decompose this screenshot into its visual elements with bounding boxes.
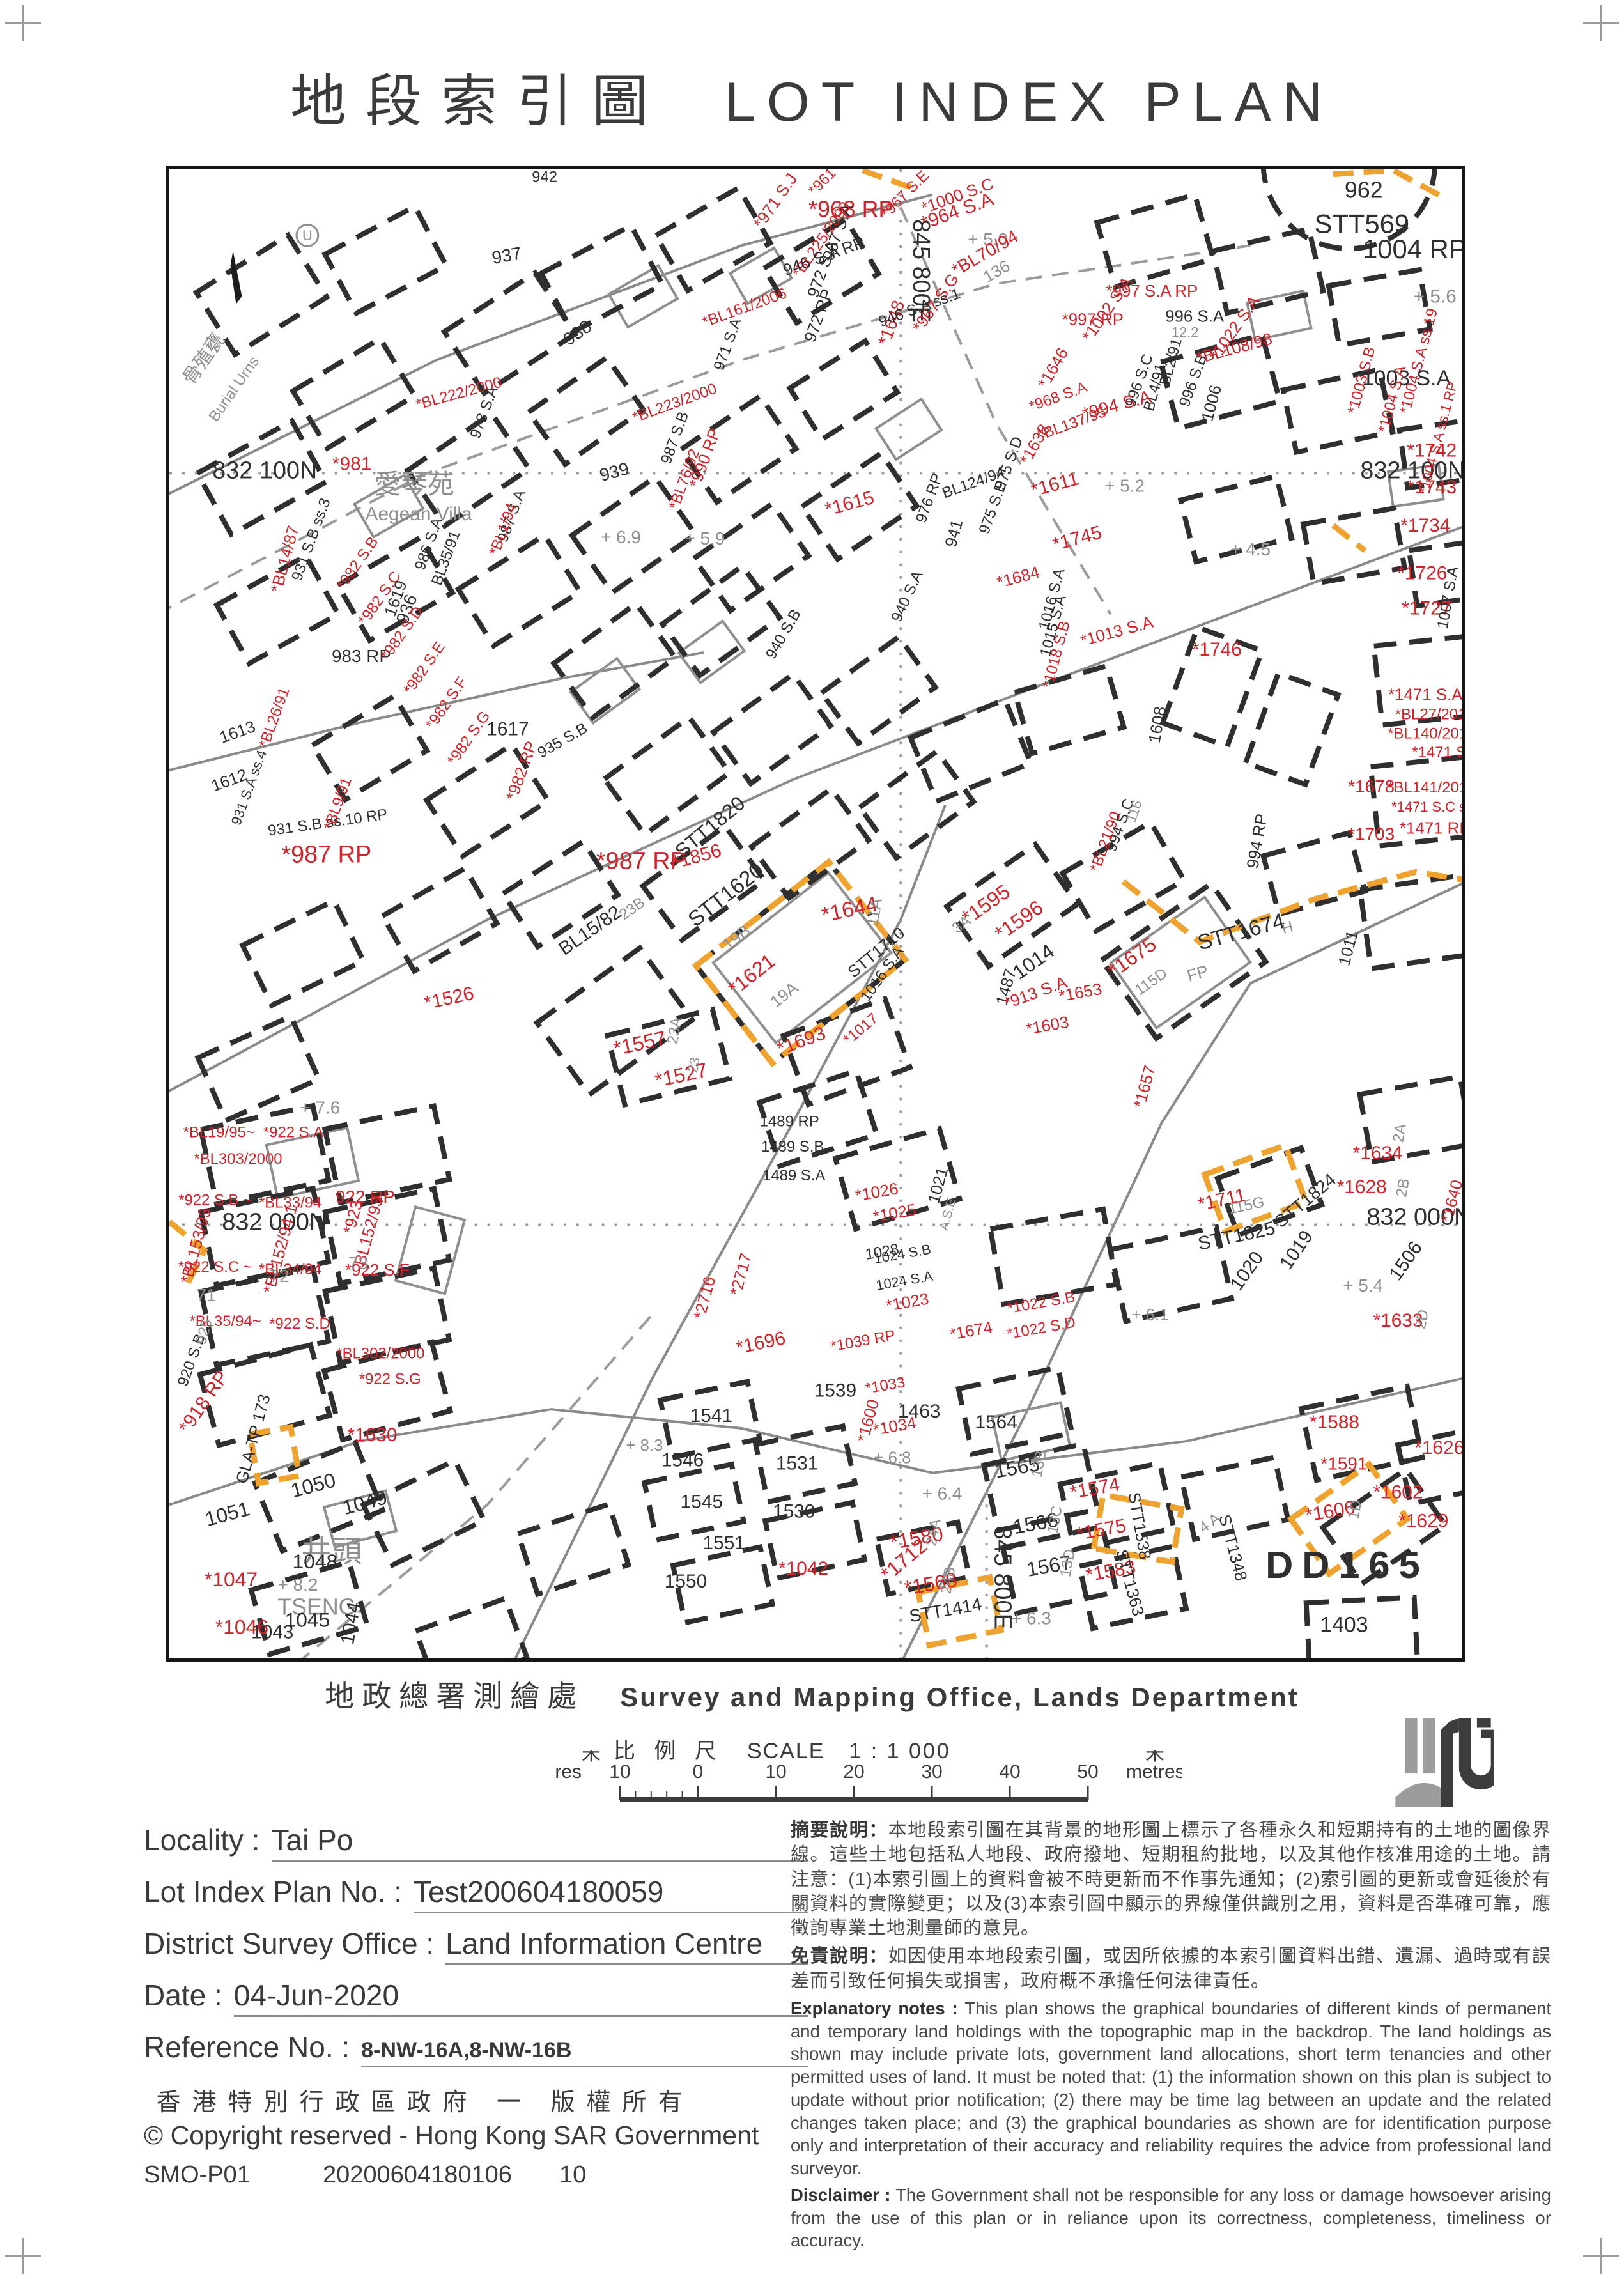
field-date-label: Date : — [144, 1978, 234, 2012]
svg-text:*2717: *2717 — [727, 1251, 756, 1298]
explanatory-notes-english: Explanatory notes : This plan shows the … — [791, 1997, 1551, 2180]
svg-text:1546: 1546 — [661, 1450, 704, 1471]
svg-text:937: 937 — [490, 243, 523, 268]
svg-text:1011: 1011 — [1335, 929, 1361, 968]
svg-text:FP: FP — [1185, 962, 1210, 985]
svg-text:*982 S.E: *982 S.E — [400, 638, 449, 698]
svg-text:832 000N: 832 000N — [222, 1209, 327, 1236]
svg-text:1051: 1051 — [203, 1497, 252, 1531]
svg-text:*982 RP: *982 RP — [503, 739, 541, 803]
svg-text:*1026: *1026 — [854, 1180, 899, 1205]
svg-text:*1746: *1746 — [1192, 639, 1242, 660]
svg-text:1530: 1530 — [773, 1501, 815, 1522]
svg-text:愛琴苑: 愛琴苑 — [374, 469, 454, 499]
page-title-chinese: 地段索引圖 — [290, 56, 667, 137]
svg-text:12.2: 12.2 — [1172, 324, 1199, 340]
copyright-chinese: 香港特別行政區政府 一 版權所有 — [144, 2082, 706, 2117]
svg-text:*1047: *1047 — [205, 1568, 258, 1591]
svg-text:*BL19/95~: *BL19/95~ — [183, 1124, 255, 1141]
notes-column: 摘要說明：本地段索引圖在其背景的地形圖上標示了各種永久和短期持有的土地的圖像界線… — [791, 1818, 1551, 2256]
svg-text:832 100N: 832 100N — [212, 457, 317, 484]
svg-text:*1471 S.B: *1471 S.B — [1412, 744, 1462, 761]
svg-text:*1046: *1046 — [215, 1615, 268, 1638]
page-title-english: LOT INDEX PLAN — [725, 71, 1334, 134]
field-plan-number: Lot Index Plan No. : Test200604180059 — [144, 1874, 808, 1913]
scale-bar: 米metres1001020304050metres米 — [556, 1750, 1182, 1809]
svg-text:*1734: *1734 — [1400, 515, 1450, 536]
svg-text:1506: 1506 — [1385, 1237, 1427, 1284]
disclaimer-note-chinese: 免責說明：如因使用本地段索引圖，或因所依據的本索引圖資料出錯、遺漏、過時或有誤差… — [791, 1944, 1551, 1993]
svg-text:10: 10 — [609, 1761, 630, 1782]
explanatory-notes-english-label: Explanatory notes : — [791, 1998, 958, 2018]
svg-text:DD165: DD165 — [1265, 1543, 1428, 1586]
page-title: 地段索引圖 LOT INDEX PLAN — [0, 56, 1624, 137]
svg-text:+ 5.2: + 5.2 — [1104, 475, 1145, 495]
svg-text:1541: 1541 — [690, 1405, 732, 1426]
svg-text:50: 50 — [1077, 1761, 1098, 1782]
svg-text:115D: 115D — [1132, 964, 1171, 999]
svg-text:1489 S.A: 1489 S.A — [762, 1167, 825, 1184]
svg-text:40: 40 — [999, 1761, 1020, 1782]
svg-text:*987 RP: *987 RP — [596, 847, 686, 874]
field-reference-number: Reference No. : 8-NW-16A,8-NW-16B — [144, 2030, 808, 2067]
field-locality-label: Locality : — [144, 1823, 272, 1857]
crop-mark-top-left — [5, 5, 41, 41]
svg-text:*1615: *1615 — [823, 487, 876, 520]
svg-text:*987 RP: *987 RP — [281, 841, 371, 868]
svg-text:1551: 1551 — [703, 1533, 745, 1554]
svg-text:*1621: *1621 — [723, 949, 780, 1000]
svg-text:*1657: *1657 — [1131, 1063, 1159, 1110]
svg-text:+ 6.9: + 6.9 — [601, 527, 641, 547]
svg-text:*1743: *1743 — [1407, 477, 1457, 498]
svg-text:*1042: *1042 — [778, 1558, 828, 1579]
svg-text:+ 5.9: + 5.9 — [684, 529, 725, 548]
svg-text:*997 RP: *997 RP — [1062, 311, 1124, 329]
svg-text:996 S.A: 996 S.A — [1165, 308, 1225, 326]
field-reference-number-label: Reference No. : — [144, 2030, 361, 2064]
svg-text:*BL27/2016: *BL27/2016 — [1395, 706, 1462, 723]
svg-text:1463: 1463 — [898, 1401, 940, 1422]
field-locality: Locality : Tai Po — [144, 1823, 808, 1862]
svg-text:*1471 S.C ss.1: *1471 S.C ss.1 — [1391, 799, 1462, 815]
svg-text:+ 5.4: + 5.4 — [1343, 1276, 1383, 1295]
svg-text:942: 942 — [532, 169, 557, 186]
svg-text:*BL140/2012: *BL140/2012 — [1388, 725, 1462, 742]
svg-text:1489 S.B: 1489 S.B — [761, 1138, 824, 1155]
svg-text:23: 23 — [684, 1056, 703, 1074]
crop-mark-bottom-left — [5, 2238, 41, 2274]
svg-text:+ 8.2: + 8.2 — [278, 1575, 318, 1595]
svg-text:941: 941 — [942, 518, 966, 549]
summary-note-chinese-label: 摘要說明： — [791, 1820, 888, 1841]
svg-text:*997 S.A RP: *997 S.A RP — [1106, 282, 1198, 300]
svg-text:*1471 RP: *1471 RP — [1400, 820, 1462, 838]
svg-text:0: 0 — [693, 1761, 704, 1782]
document-page: 10 — [559, 2161, 586, 2189]
svg-text:962: 962 — [1345, 178, 1383, 203]
svg-text:1613: 1613 — [217, 718, 258, 747]
svg-text:*BL302/2000: *BL302/2000 — [336, 1345, 424, 1363]
copyright-english: © Copyright reserved - Hong Kong SAR Gov… — [144, 2121, 759, 2151]
svg-text:1004 RP: 1004 RP — [1363, 234, 1462, 264]
svg-text:19A: 19A — [768, 978, 802, 1011]
cadastral-map-canvas: U832 100N832 100N832 000N832 000N845 800… — [169, 169, 1462, 1658]
svg-text:940 S.A: 940 S.A — [888, 568, 926, 624]
svg-text:73: 73 — [348, 1253, 368, 1273]
svg-text:*1603: *1603 — [1025, 1014, 1070, 1039]
crop-mark-top-right — [1583, 5, 1619, 41]
svg-text:1049: 1049 — [340, 1485, 390, 1519]
svg-text:*1025: *1025 — [872, 1201, 917, 1226]
svg-text:*961: *961 — [805, 169, 840, 199]
svg-text:1550: 1550 — [665, 1571, 707, 1592]
svg-text:*922 S.G: *922 S.G — [359, 1370, 421, 1387]
svg-text:1050: 1050 — [288, 1468, 338, 1502]
office-name-chinese: 地政總署測繪處 — [325, 1673, 584, 1715]
disclaimer-note-chinese-label: 免責說明： — [791, 1946, 888, 1966]
office-name-english: Survey and Mapping Office, Lands Departm… — [620, 1682, 1299, 1713]
svg-text:*BL141/2012: *BL141/2012 — [1388, 779, 1462, 796]
svg-text:+ 6.3: + 6.3 — [1011, 1609, 1051, 1628]
svg-text:72: 72 — [270, 1266, 290, 1286]
svg-text:*1674: *1674 — [948, 1318, 994, 1343]
svg-text:*1591: *1591 — [1321, 1454, 1368, 1474]
svg-text:*1471 S.A: *1471 S.A — [1388, 686, 1462, 704]
svg-text:2B: 2B — [1393, 1177, 1413, 1198]
svg-text:骨殖甕: 骨殖甕 — [179, 330, 229, 389]
svg-text:*1684: *1684 — [995, 564, 1042, 592]
field-district-office-value: Land Information Centre — [445, 1927, 762, 1960]
svg-text:935 S.B: 935 S.B — [535, 720, 591, 762]
field-date: Date : 04-Jun-2020 — [144, 1978, 808, 2017]
svg-text:30: 30 — [921, 1761, 942, 1782]
svg-text:米: 米 — [1145, 1750, 1164, 1765]
svg-text:1048: 1048 — [292, 1550, 337, 1573]
svg-text:STT1348: STT1348 — [1215, 1513, 1250, 1583]
field-plan-number-value: Test200604180059 — [414, 1875, 663, 1908]
svg-text:*1628: *1628 — [1337, 1177, 1387, 1198]
svg-text:*1602: *1602 — [1373, 1481, 1423, 1503]
svg-text:*1696: *1696 — [734, 1327, 787, 1358]
lands-department-logo — [1392, 1718, 1494, 1807]
field-district-office-label: District Survey Office : — [144, 1926, 445, 1961]
svg-text:Burial Urns: Burial Urns — [205, 353, 263, 425]
svg-text:*922 S.B ~: *922 S.B ~ — [178, 1192, 252, 1209]
issuing-office-line: 地政總署測繪處 Survey and Mapping Office, Lands… — [0, 1673, 1624, 1715]
crop-mark-bottom-right — [1583, 2238, 1619, 2274]
svg-text:*971 S.J: *971 S.J — [750, 171, 801, 232]
lot-index-plan-sheet: { "header": {"title_zh": "地段索引圖", "title… — [0, 0, 1624, 2279]
disclaimer-english: Disclaimer : The Government shall not be… — [791, 2184, 1551, 2252]
svg-text:1608: 1608 — [1146, 705, 1170, 745]
svg-text:*1022 S.B: *1022 S.B — [1006, 1288, 1077, 1317]
svg-text:*1703: *1703 — [1348, 824, 1395, 844]
svg-text:976 RP: 976 RP — [913, 472, 947, 525]
svg-text:+ 7.6: + 7.6 — [300, 1097, 340, 1117]
svg-text:+ 6.8: + 6.8 — [874, 1449, 911, 1467]
svg-text:STT1825: STT1825 — [1196, 1217, 1277, 1255]
svg-text:+ 6.4: + 6.4 — [922, 1483, 963, 1503]
field-locality-value: Tai Po — [272, 1823, 353, 1857]
field-reference-number-value: 8-NW-16A,8-NW-16B — [361, 2038, 571, 2062]
svg-text:*922 S.D: *922 S.D — [269, 1315, 330, 1333]
svg-text:1531: 1531 — [776, 1453, 818, 1474]
form-code: SMO-P01 — [144, 2161, 251, 2189]
svg-text:+ 5.6: + 5.6 — [1414, 286, 1457, 307]
svg-text:*981: *981 — [332, 453, 371, 474]
svg-text:H: H — [1280, 918, 1295, 938]
svg-text:*1017: *1017 — [840, 1010, 881, 1049]
svg-text:*1526: *1526 — [422, 983, 476, 1014]
svg-text:Aegean Villa: Aegean Villa — [366, 504, 472, 525]
svg-text:*1630: *1630 — [347, 1425, 397, 1446]
svg-text:*922 S.A: *922 S.A — [263, 1124, 323, 1141]
disclaimer-english-label: Disclaimer : — [791, 2185, 890, 2205]
svg-text:1019: 1019 — [1276, 1226, 1317, 1273]
svg-text:972 RP: 972 RP — [801, 287, 837, 345]
svg-text:*1023: *1023 — [885, 1290, 930, 1315]
field-district-office: District Survey Office : Land Informatio… — [144, 1926, 808, 1965]
field-plan-number-label: Lot Index Plan No. : — [144, 1874, 414, 1909]
svg-text:*982 S.F: *982 S.F — [422, 674, 470, 733]
svg-text:*1013 S.A: *1013 S.A — [1079, 614, 1156, 650]
svg-text:+ 8.3: + 8.3 — [626, 1437, 663, 1455]
svg-text:*BL161/2006: *BL161/2006 — [700, 284, 789, 331]
svg-text:2D: 2D — [1412, 1308, 1432, 1331]
svg-text:STT1824: STT1824 — [1271, 1170, 1340, 1232]
svg-text:*1033: *1033 — [864, 1373, 906, 1397]
svg-text:+ 4.5: + 4.5 — [1230, 539, 1271, 559]
svg-text:U: U — [302, 228, 313, 243]
svg-text:71: 71 — [196, 1285, 216, 1305]
svg-text:*1726: *1726 — [1397, 563, 1447, 584]
svg-text:1020: 1020 — [1226, 1248, 1267, 1294]
svg-text:1564: 1564 — [975, 1412, 1017, 1433]
summary-note-chinese: 摘要說明：本地段索引圖在其背景的地形圖上標示了各種永久和短期持有的土地的圖像界線… — [791, 1818, 1551, 1940]
svg-text:1539: 1539 — [814, 1380, 856, 1401]
svg-text:20: 20 — [843, 1761, 864, 1782]
field-date-value: 04-Jun-2020 — [234, 1979, 399, 2012]
svg-text:1024 S.A: 1024 S.A — [875, 1268, 934, 1294]
svg-text:*1634: *1634 — [1353, 1143, 1403, 1164]
svg-text:*1022 S.D: *1022 S.D — [1005, 1314, 1077, 1343]
svg-text:1403: 1403 — [1320, 1612, 1368, 1637]
svg-text:939: 939 — [598, 458, 631, 485]
svg-text:metres: metres — [556, 1761, 582, 1782]
svg-text:1545: 1545 — [681, 1491, 723, 1512]
svg-text:*1039 RP: *1039 RP — [830, 1327, 897, 1355]
svg-text:1617: 1617 — [486, 718, 529, 739]
svg-text:*1742: *1742 — [1407, 440, 1457, 461]
svg-text:940 S.B: 940 S.B — [762, 606, 805, 662]
svg-text:*1626: *1626 — [1414, 1437, 1462, 1458]
plan-metadata-fields: Locality : Tai Po Lot Index Plan No. : T… — [144, 1823, 808, 2080]
svg-text:*BL303/2000: *BL303/2000 — [194, 1150, 282, 1168]
svg-text:1D: 1D — [1345, 1499, 1365, 1521]
svg-text:2A: 2A — [1389, 1122, 1410, 1144]
svg-text:米: 米 — [582, 1750, 601, 1765]
svg-text:*1588: *1588 — [1310, 1412, 1359, 1433]
svg-text:10: 10 — [765, 1761, 786, 1782]
lot-index-map[interactable]: U832 100N832 100N832 000N832 000N845 800… — [166, 166, 1465, 1662]
svg-text:*1004 S.A ss.19: *1004 S.A ss.19 — [1396, 307, 1441, 416]
svg-text:*1629: *1629 — [1398, 1510, 1448, 1531]
svg-text:+ 6.1: + 6.1 — [1131, 1306, 1168, 1324]
svg-text:23A: 23A — [664, 1016, 686, 1046]
document-number: 20200604180106 — [323, 2161, 512, 2189]
svg-text:1489 RP: 1489 RP — [760, 1113, 819, 1130]
